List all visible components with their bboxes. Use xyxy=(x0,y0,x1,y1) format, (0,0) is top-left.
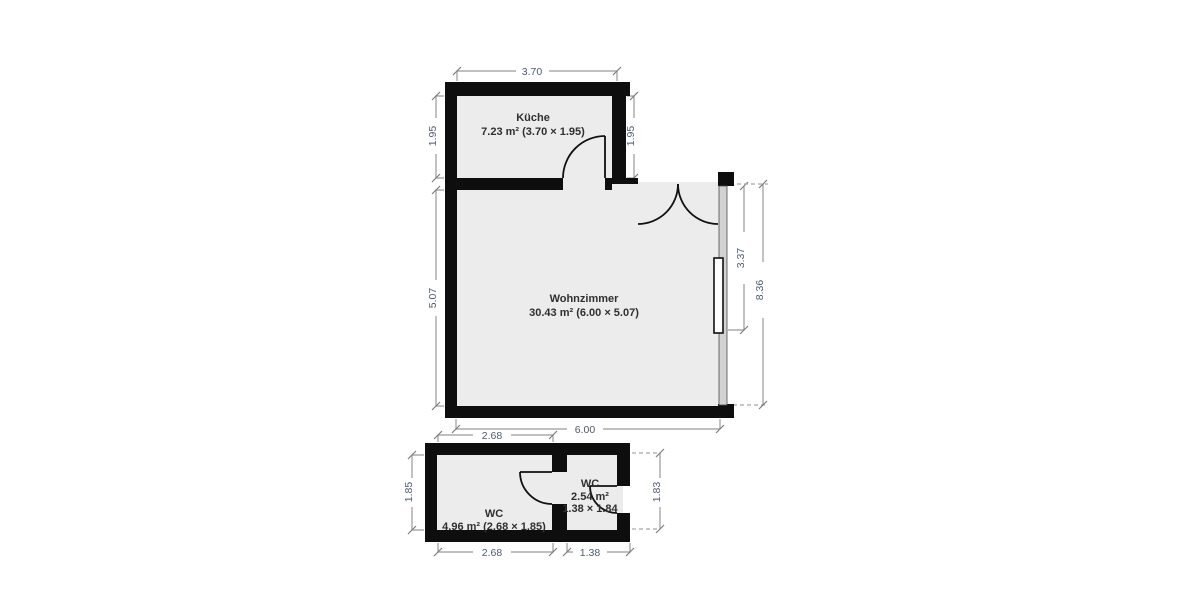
dim-wc-bottom: 2.68 xyxy=(482,547,503,559)
dim-wc-left: 1.85 xyxy=(403,482,415,503)
room-label-wc-klein: WC xyxy=(581,478,599,490)
floorplan-canvas: Küche 7.23 m² (3.70 × 1.95) Wohnzimmer 3… xyxy=(0,0,1200,600)
dim-wc-top: 2.68 xyxy=(482,430,503,442)
dim-wc-klein-bottom: 1.38 xyxy=(580,547,601,559)
dim-wohnzimmer-left: 5.07 xyxy=(427,288,439,309)
dim-kueche-top: 3.70 xyxy=(522,66,543,78)
room-area-wc-klein: 2.54 m² xyxy=(571,491,609,503)
floorplan-svg: Küche 7.23 m² (3.70 × 1.95) Wohnzimmer 3… xyxy=(0,0,1200,600)
dim-fenster-right: 3.37 xyxy=(735,248,747,269)
room-area-kueche: 7.23 m² (3.70 × 1.95) xyxy=(481,126,585,138)
room-label-wc: WC xyxy=(485,508,503,520)
dim-wc-klein-right: 1.83 xyxy=(651,482,663,503)
window xyxy=(714,258,723,333)
room-dims-wc-klein: 1.38 × 1.84 xyxy=(562,503,618,515)
dim-kueche-right: 1.95 xyxy=(625,126,637,147)
room-area-wohnzimmer: 30.43 m² (6.00 × 5.07) xyxy=(529,307,639,319)
dim-kueche-left: 1.95 xyxy=(427,126,439,147)
room-label-kueche: Küche xyxy=(516,112,550,124)
dim-wohnzimmer-bottom: 6.00 xyxy=(575,424,596,436)
dim-gesamt-right: 8.36 xyxy=(754,280,766,301)
room-area-wc: 4.96 m² (2.68 × 1.85) xyxy=(442,521,546,533)
room-label-wohnzimmer: Wohnzimmer xyxy=(550,293,620,305)
